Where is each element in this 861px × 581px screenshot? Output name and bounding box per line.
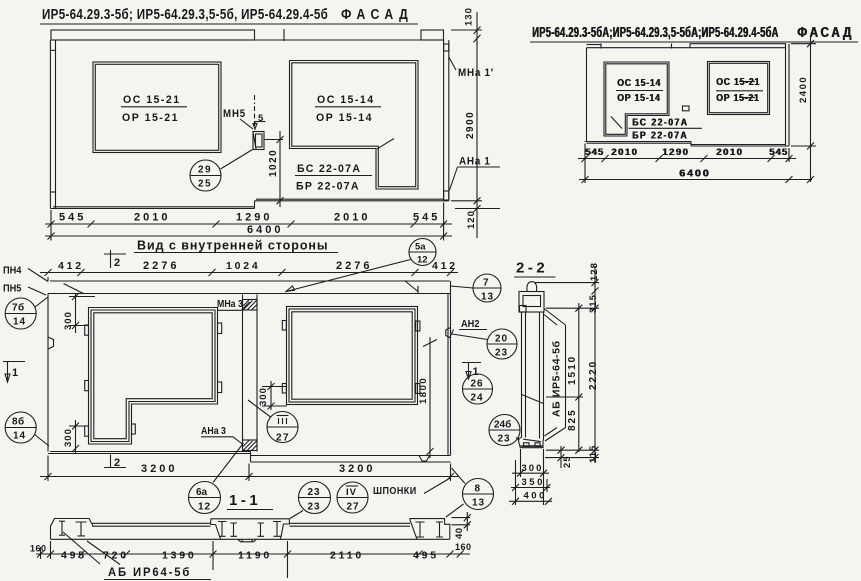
- svg-text:ОС 15-14: ОС 15-14: [317, 94, 375, 106]
- svg-text:545: 545: [585, 147, 604, 158]
- svg-text:12: 12: [417, 255, 428, 266]
- svg-text:23: 23: [308, 502, 321, 513]
- svg-text:24: 24: [471, 393, 484, 404]
- svg-text:2400: 2400: [798, 76, 809, 103]
- svg-text:2: 2: [114, 457, 120, 469]
- svg-text:2010: 2010: [334, 212, 370, 224]
- svg-text:545: 545: [59, 212, 86, 224]
- svg-text:25: 25: [198, 179, 212, 190]
- svg-text:АБ ИР64-5б: АБ ИР64-5б: [108, 566, 191, 579]
- svg-text:23: 23: [495, 348, 508, 359]
- svg-text:ИР5-64.29.3-5б; ИР5-64.29.3,5-: ИР5-64.29.3-5б; ИР5-64.29.3,5-5б, ИР5-64…: [42, 6, 328, 23]
- svg-text:АБ ИР5-64-5б: АБ ИР5-64-5б: [551, 340, 563, 417]
- svg-text:300: 300: [258, 387, 269, 406]
- svg-text:АНа 1: АНа 1: [459, 156, 491, 168]
- svg-text:1190: 1190: [238, 550, 272, 562]
- svg-text:1024: 1024: [226, 260, 261, 272]
- svg-text:БР 22-07А: БР 22-07А: [296, 180, 360, 192]
- svg-text:7б: 7б: [12, 302, 25, 314]
- svg-text:БС 22-07А: БС 22-07А: [297, 163, 361, 175]
- svg-text:27: 27: [347, 502, 360, 513]
- svg-text:545: 545: [413, 212, 440, 224]
- svg-text:ОС 15-21: ОС 15-21: [123, 94, 181, 106]
- svg-text:ФАСАД: ФАСАД: [797, 24, 854, 41]
- svg-text:40: 40: [454, 527, 465, 539]
- svg-text:13: 13: [472, 498, 485, 509]
- svg-text:24б: 24б: [494, 419, 511, 431]
- svg-text:1800: 1800: [418, 377, 429, 404]
- svg-text:1510: 1510: [567, 355, 578, 385]
- svg-text:6400: 6400: [679, 168, 710, 180]
- svg-text:300: 300: [63, 428, 74, 447]
- svg-text:БС 22-07А: БС 22-07А: [632, 117, 688, 129]
- svg-text:1020: 1020: [268, 149, 279, 177]
- svg-text:ПН4: ПН4: [3, 265, 22, 277]
- svg-text:ОР 15-21: ОР 15-21: [716, 92, 759, 104]
- svg-text:ШПОНКИ: ШПОНКИ: [373, 486, 417, 498]
- svg-text:3200: 3200: [141, 463, 177, 475]
- svg-text:27: 27: [276, 433, 290, 444]
- svg-text:2220: 2220: [588, 360, 599, 390]
- svg-text:2010: 2010: [716, 147, 743, 158]
- svg-text:26: 26: [471, 379, 484, 390]
- svg-text:2-2: 2-2: [516, 260, 548, 277]
- svg-text:20: 20: [495, 334, 508, 345]
- svg-text:ОС 15-21: ОС 15-21: [716, 76, 760, 88]
- svg-text:ОР 15-14: ОР 15-14: [316, 112, 373, 124]
- svg-text:АН2: АН2: [461, 319, 480, 331]
- svg-text:1: 1: [473, 366, 479, 378]
- svg-text:5а: 5а: [415, 242, 426, 253]
- svg-text:350: 350: [522, 477, 545, 488]
- svg-text:412: 412: [432, 260, 458, 272]
- svg-text:8б: 8б: [12, 416, 25, 428]
- svg-text:115: 115: [588, 445, 599, 463]
- svg-text:14: 14: [13, 317, 26, 328]
- svg-text:495: 495: [413, 550, 439, 562]
- svg-text:120: 120: [466, 210, 477, 229]
- svg-text:825: 825: [567, 408, 578, 431]
- svg-text:7: 7: [483, 278, 489, 289]
- svg-text:ОР 15-14: ОР 15-14: [617, 92, 660, 104]
- svg-text:ПН5: ПН5: [3, 283, 22, 295]
- svg-text:МНа 3: МНа 3: [217, 297, 243, 309]
- svg-text:ОР 15-21: ОР 15-21: [122, 112, 179, 124]
- svg-text:545: 545: [769, 147, 788, 158]
- svg-text:2010: 2010: [134, 212, 170, 224]
- svg-text:1390: 1390: [162, 550, 197, 562]
- svg-text:6а: 6а: [196, 487, 208, 498]
- svg-text:2010: 2010: [611, 147, 638, 158]
- svg-text:ИР5-64.29.3-5бА;ИР5-64.29.3,5-: ИР5-64.29.3-5бА;ИР5-64.29.3,5-5бА;ИР5-64…: [532, 24, 778, 41]
- svg-text:130: 130: [464, 7, 475, 26]
- svg-text:МНа 1′: МНа 1′: [458, 68, 494, 80]
- svg-text:ФАСАД: ФАСАД: [341, 6, 413, 22]
- svg-text:МН5: МН5: [223, 109, 246, 121]
- svg-text:8: 8: [475, 484, 481, 495]
- svg-text:300: 300: [522, 463, 544, 474]
- svg-text:13: 13: [481, 292, 494, 303]
- svg-text:23: 23: [308, 487, 321, 498]
- svg-text:160: 160: [30, 544, 47, 554]
- svg-text:128: 128: [589, 262, 600, 281]
- svg-text:400: 400: [524, 491, 547, 502]
- svg-text:23: 23: [498, 434, 511, 445]
- svg-text:ОС 15-14: ОС 15-14: [617, 77, 661, 89]
- svg-text:300: 300: [63, 311, 74, 330]
- svg-text:3200: 3200: [339, 463, 375, 475]
- svg-text:АНа 3: АНа 3: [201, 424, 226, 436]
- svg-text:160: 160: [455, 542, 472, 552]
- svg-text:IV: IV: [346, 487, 357, 498]
- svg-text:1290: 1290: [662, 147, 689, 158]
- svg-text:2: 2: [114, 257, 120, 269]
- svg-text:1: 1: [12, 367, 18, 379]
- svg-text:5: 5: [258, 113, 264, 124]
- svg-text:14: 14: [13, 431, 26, 442]
- svg-text:2900: 2900: [465, 111, 476, 139]
- svg-text:Вид с внутренней стороны: Вид с внутренней стороны: [137, 237, 329, 252]
- svg-text:2276: 2276: [143, 260, 179, 272]
- svg-text:БР 22-07А: БР 22-07А: [632, 130, 688, 142]
- svg-text:412: 412: [58, 260, 84, 272]
- svg-text:25: 25: [562, 455, 573, 468]
- svg-text:1290: 1290: [236, 212, 272, 224]
- svg-text:6400: 6400: [247, 224, 283, 236]
- svg-text:29: 29: [198, 165, 212, 176]
- svg-text:1-1: 1-1: [229, 492, 261, 509]
- svg-text:495: 495: [61, 550, 87, 562]
- svg-text:315: 315: [588, 294, 599, 313]
- svg-text:12: 12: [198, 502, 211, 513]
- svg-text:2110: 2110: [330, 550, 364, 562]
